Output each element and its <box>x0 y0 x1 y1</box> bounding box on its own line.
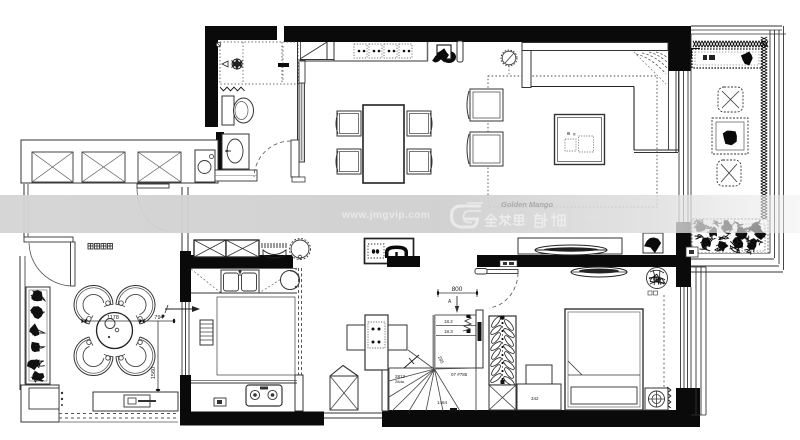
svg-text:07 #785: 07 #785 <box>451 372 468 377</box>
svg-text:1464: 1464 <box>437 400 448 405</box>
svg-text:28da: 28da <box>395 379 405 384</box>
svg-text:Golden Mango: Golden Mango <box>501 200 553 209</box>
svg-text:18.3: 18.3 <box>444 329 453 334</box>
svg-text:(0871: (0871 <box>587 216 605 223</box>
svg-text:342: 342 <box>531 396 539 401</box>
svg-text:1178: 1178 <box>107 315 119 321</box>
svg-text:800: 800 <box>452 286 463 293</box>
svg-text:18.2: 18.2 <box>444 319 453 324</box>
svg-text:794: 794 <box>154 315 163 321</box>
svg-text:1560: 1560 <box>151 367 157 379</box>
svg-text:www.jmgvip.com: www.jmgvip.com <box>341 210 430 221</box>
